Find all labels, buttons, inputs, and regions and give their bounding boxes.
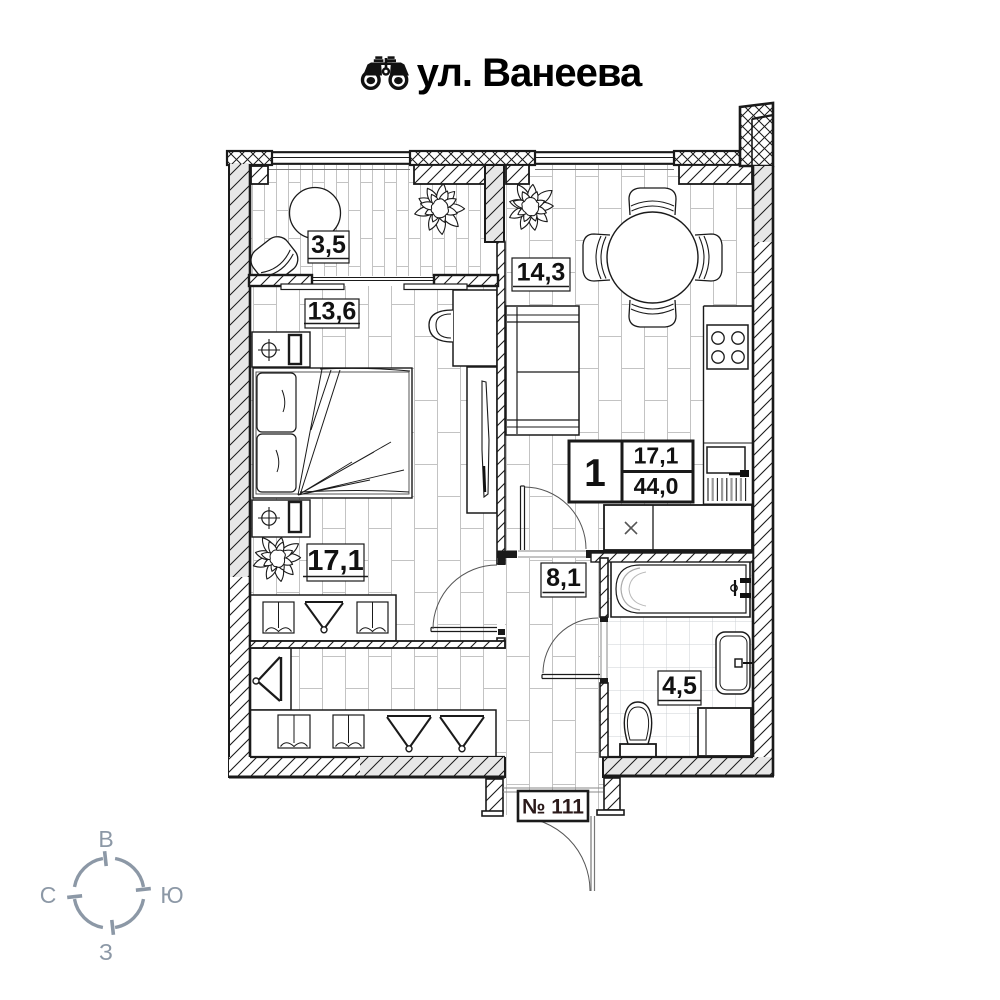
svg-text:С: С (40, 882, 57, 908)
svg-text:ул. Ванеева: ул. Ванеева (417, 51, 643, 95)
svg-text:4,5: 4,5 (662, 672, 697, 700)
svg-text:13,6: 13,6 (308, 298, 357, 326)
svg-text:44,0: 44,0 (634, 473, 679, 499)
svg-text:17,1: 17,1 (307, 545, 363, 577)
svg-text:14,3: 14,3 (517, 259, 566, 287)
svg-text:17,1: 17,1 (634, 443, 679, 469)
svg-text:№ 111: № 111 (522, 796, 584, 819)
svg-text:8,1: 8,1 (546, 564, 581, 592)
svg-text:3,5: 3,5 (311, 231, 346, 259)
svg-text:1: 1 (584, 452, 606, 495)
svg-text:Ю: Ю (160, 882, 183, 908)
svg-text:З: З (99, 939, 113, 965)
svg-text:В: В (98, 826, 113, 852)
